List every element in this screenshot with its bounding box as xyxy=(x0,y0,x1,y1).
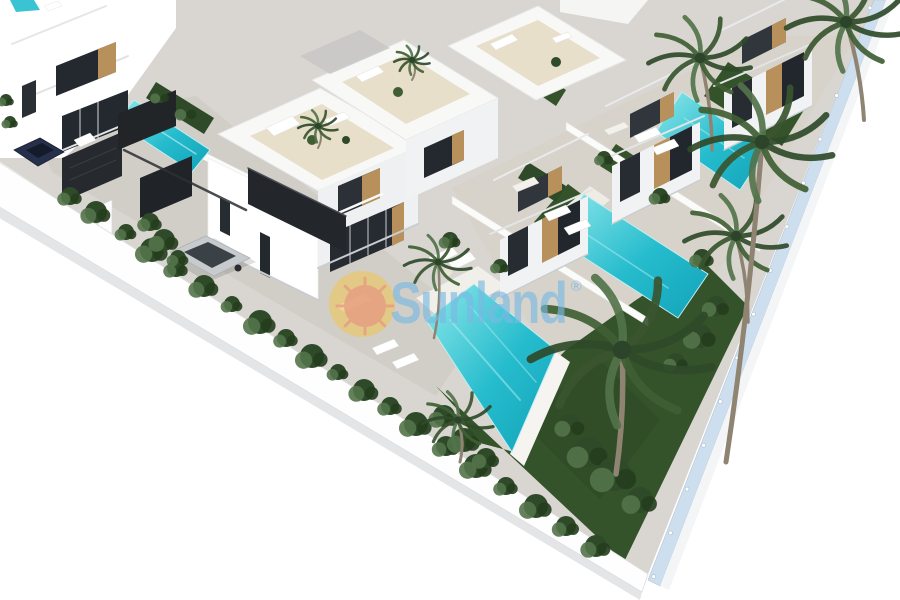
bush xyxy=(179,256,189,266)
palm-crown xyxy=(435,259,442,266)
bush xyxy=(205,283,218,296)
fence-post xyxy=(752,312,756,316)
bush xyxy=(377,403,390,416)
bush xyxy=(622,495,641,514)
render-viewport: Sunland ® xyxy=(0,0,900,600)
fence-post xyxy=(718,400,722,404)
fence-post xyxy=(702,443,706,447)
bush xyxy=(115,229,127,241)
bush xyxy=(493,483,506,496)
bush xyxy=(161,94,169,102)
door-slot xyxy=(260,232,270,278)
wood-door xyxy=(766,63,782,115)
palm-crown xyxy=(409,57,415,63)
bush xyxy=(163,265,176,278)
bush xyxy=(11,120,18,127)
bush xyxy=(571,422,584,435)
bush xyxy=(348,386,364,402)
bush xyxy=(165,237,178,250)
bush xyxy=(501,264,509,272)
bush xyxy=(327,369,339,381)
bush xyxy=(605,156,613,164)
palm-crown xyxy=(840,16,852,28)
bush xyxy=(7,98,14,105)
window-slot xyxy=(220,198,230,236)
bush xyxy=(399,420,416,437)
fence-post xyxy=(668,531,672,535)
bush xyxy=(641,496,657,512)
bush xyxy=(537,502,551,516)
bush xyxy=(273,335,286,348)
bush xyxy=(233,302,243,312)
bush xyxy=(339,370,349,380)
bush xyxy=(261,318,275,332)
roof-plant xyxy=(393,87,403,97)
bush xyxy=(554,421,570,437)
palm-crown xyxy=(731,231,741,241)
bush xyxy=(295,352,312,369)
palm-crown xyxy=(755,135,769,149)
bush xyxy=(567,446,589,468)
bush xyxy=(188,282,204,298)
bush xyxy=(150,93,160,103)
window-wood-frame xyxy=(452,130,464,165)
bush xyxy=(80,208,96,224)
fence-post xyxy=(685,487,689,491)
bush xyxy=(151,219,162,230)
bush xyxy=(490,263,500,273)
bush xyxy=(127,230,137,240)
bush xyxy=(221,301,233,313)
bush xyxy=(519,502,536,519)
bush xyxy=(580,542,596,558)
bush xyxy=(552,522,566,536)
bush xyxy=(365,387,378,400)
palm-crown xyxy=(613,341,631,359)
door xyxy=(22,80,36,118)
bush xyxy=(287,335,298,346)
bush xyxy=(313,352,327,366)
bush xyxy=(57,193,70,206)
bush xyxy=(175,109,187,121)
bush xyxy=(71,193,82,204)
wood-door xyxy=(392,202,404,246)
bush xyxy=(432,442,446,456)
bush xyxy=(167,255,179,267)
bush xyxy=(243,318,260,335)
bush xyxy=(97,209,110,222)
bush xyxy=(1,120,10,129)
bush xyxy=(187,110,197,120)
bush xyxy=(590,468,614,492)
bush xyxy=(649,193,661,205)
bush xyxy=(567,523,579,535)
roof-plant xyxy=(342,136,350,144)
palm-crown xyxy=(695,53,705,63)
bush xyxy=(472,454,486,468)
villa-development-render xyxy=(0,0,900,600)
bush xyxy=(137,219,150,232)
fence-post xyxy=(785,225,789,229)
bush xyxy=(177,265,188,276)
bush xyxy=(487,455,499,467)
palm-crown xyxy=(454,416,461,423)
bush xyxy=(507,483,518,494)
bush xyxy=(148,236,164,252)
roof-plant xyxy=(551,57,561,67)
bush xyxy=(597,543,610,556)
fence-post xyxy=(868,6,872,10)
suv-wheel xyxy=(235,265,242,272)
bush xyxy=(135,246,152,263)
palm-crown xyxy=(315,123,321,129)
bush xyxy=(701,332,715,346)
fence-post xyxy=(835,93,839,97)
bush xyxy=(717,303,729,315)
fence-post xyxy=(652,575,656,579)
bush xyxy=(594,155,604,165)
bush xyxy=(391,403,402,414)
bush xyxy=(661,194,671,204)
fence-post xyxy=(818,137,822,141)
